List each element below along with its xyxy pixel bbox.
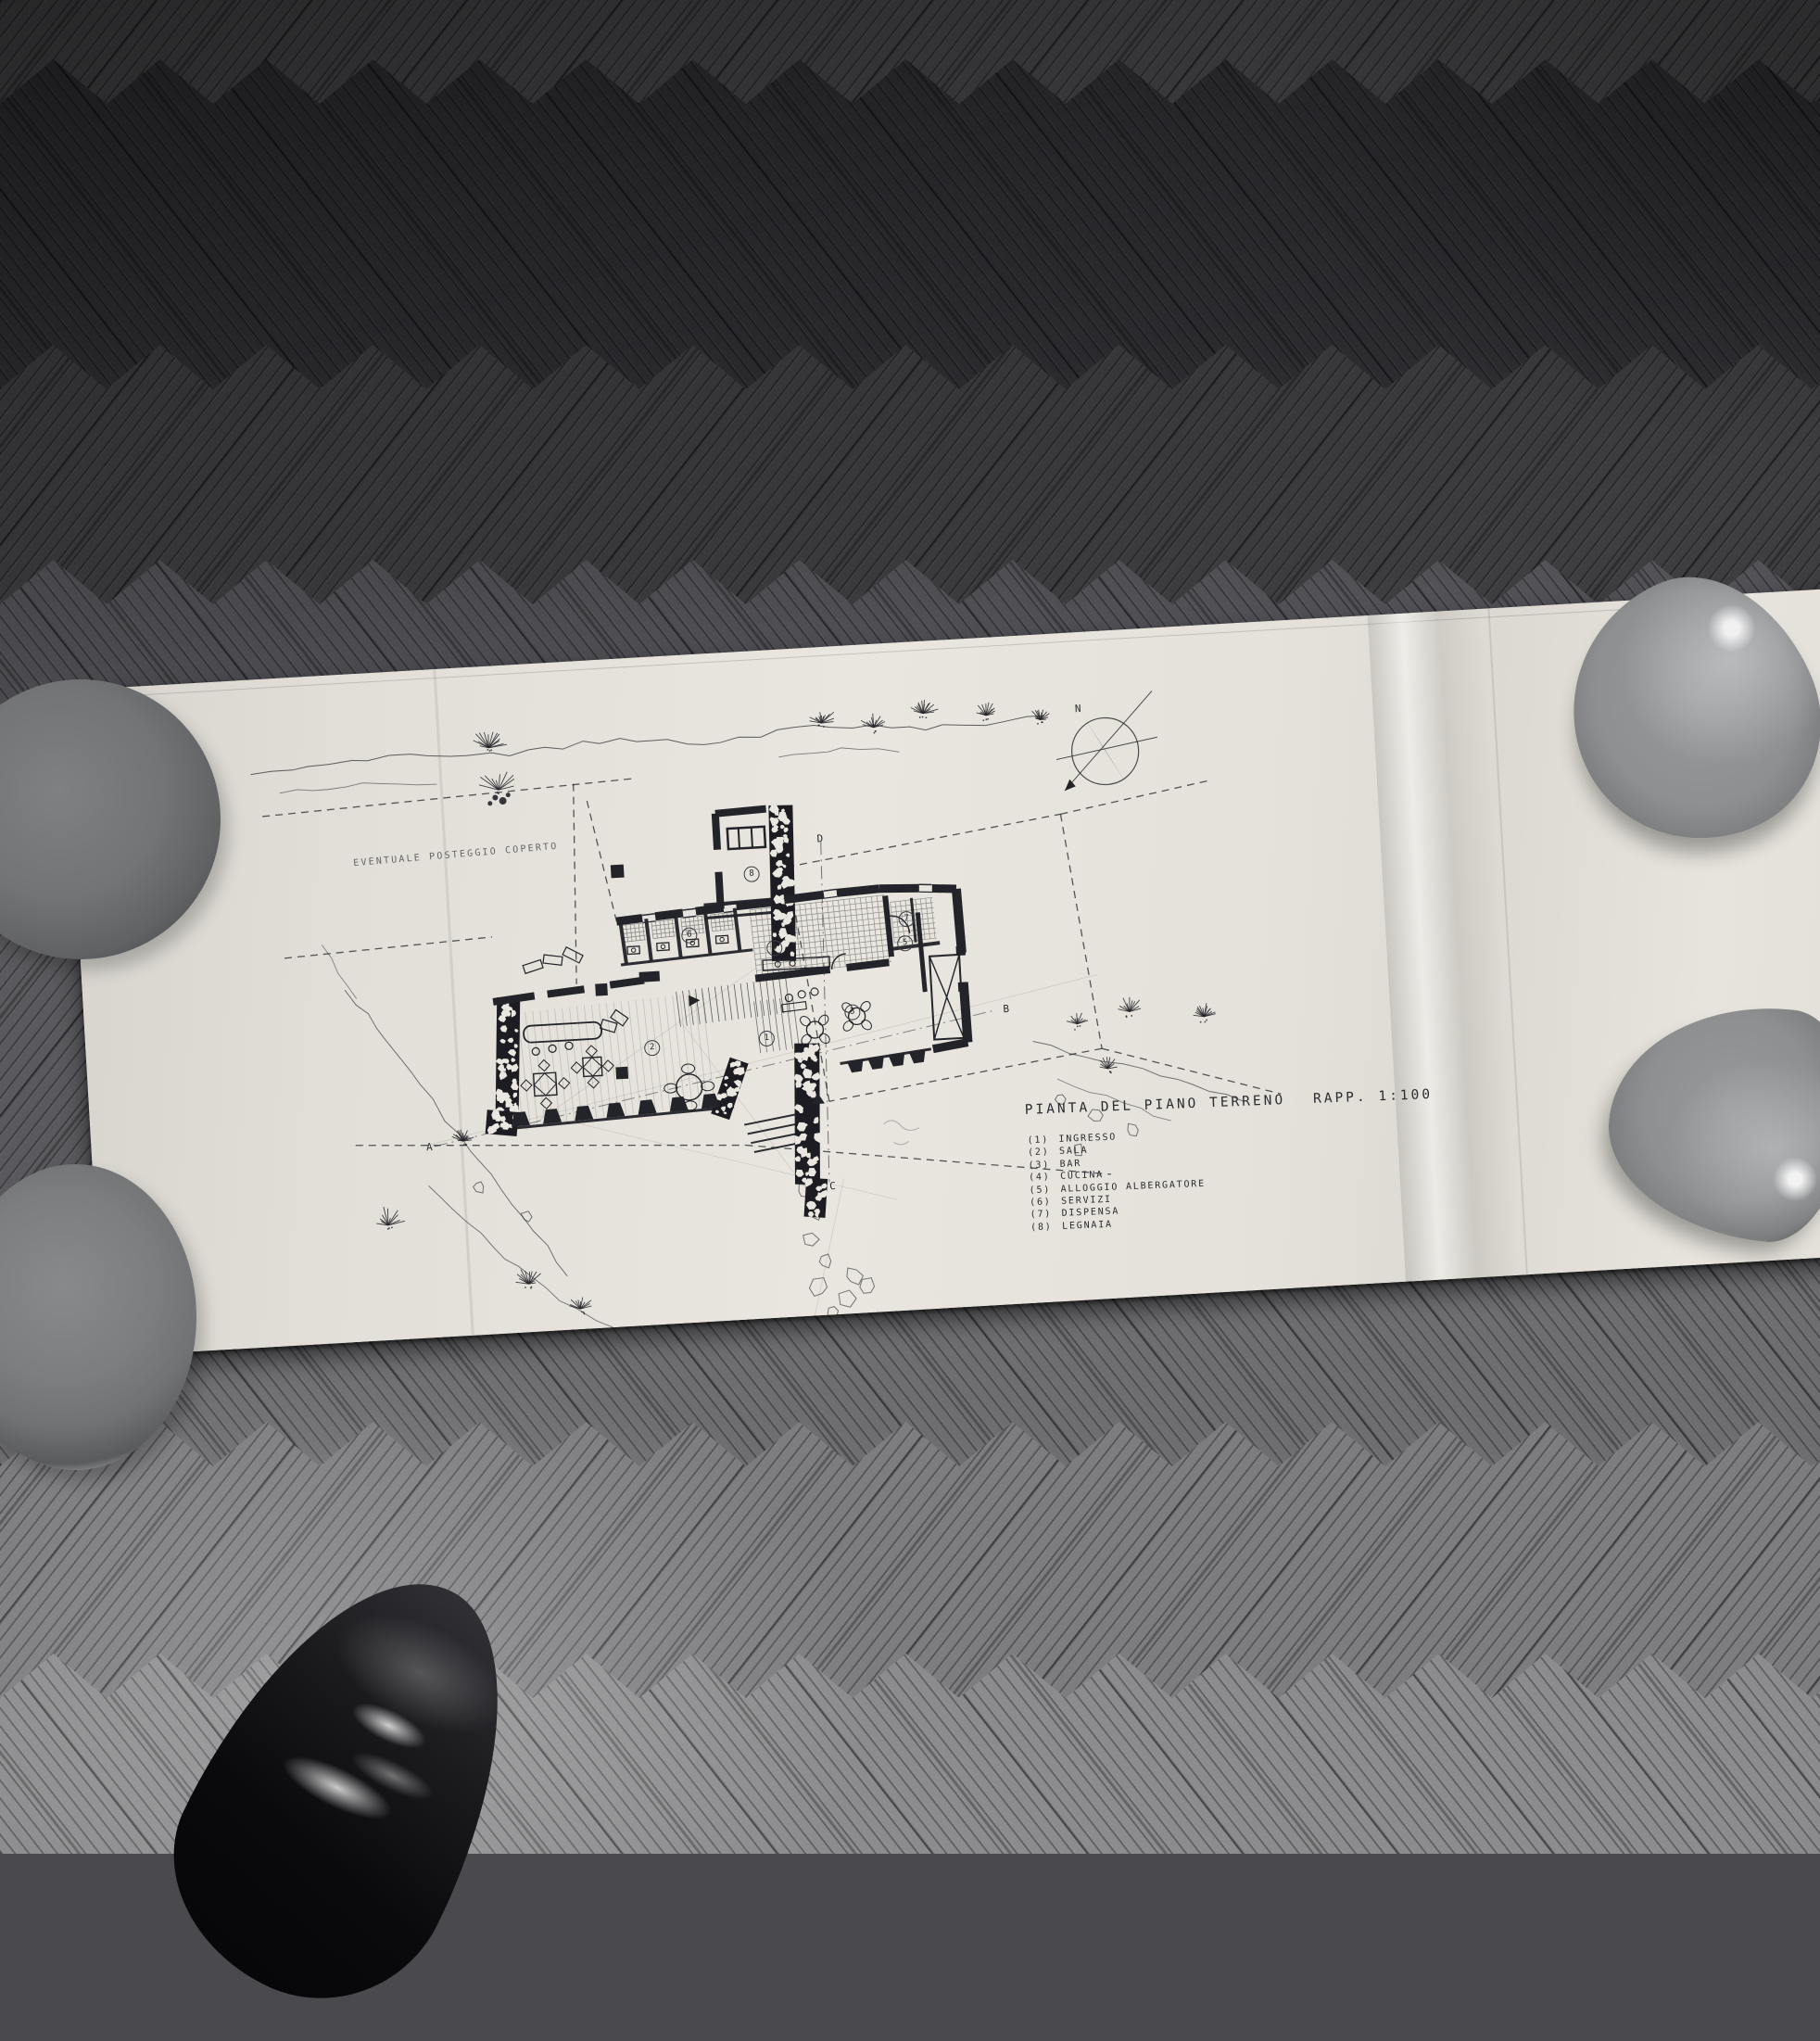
legend-label: LEGNAIA — [1062, 1219, 1113, 1233]
legend-num: (6) — [1030, 1196, 1061, 1210]
legend-num: (5) — [1029, 1183, 1060, 1197]
north-label: N — [1075, 703, 1081, 715]
legend-num: (1) — [1027, 1134, 1058, 1147]
legend-label: BAR — [1059, 1158, 1081, 1171]
section-marker: C — [829, 1180, 836, 1192]
legend-label: SALA — [1059, 1145, 1089, 1159]
legend-num: (8) — [1030, 1221, 1062, 1235]
stone-walls — [467, 803, 831, 1237]
photograph-floorplan-on-parquet: { "drawing": { "title": "PIANTA DEL PIAN… — [0, 0, 1820, 1854]
drawing-sheet: EVENTUALE POSTEGGIO COPERTO N PIANTA DEL… — [65, 586, 1820, 1357]
north-compass-icon — [1053, 691, 1160, 791]
legend-num: (4) — [1029, 1171, 1060, 1185]
terrain-contours — [248, 683, 1257, 1357]
section-marker: D — [816, 832, 823, 844]
floor-plan-drawing — [220, 653, 1404, 1357]
legend-num: (3) — [1028, 1159, 1059, 1173]
legend-num: (2) — [1028, 1146, 1059, 1160]
section-marker: A — [426, 1141, 433, 1153]
section-marker: B — [1003, 1003, 1009, 1015]
parquet-band — [0, 59, 1820, 389]
plan-legend: (1)INGRESSO (2)SALA (3)BAR (4)CUCINA (5)… — [1027, 1128, 1207, 1234]
legend-label: INGRESSO — [1058, 1131, 1117, 1146]
legend-num: (7) — [1030, 1208, 1061, 1222]
construction-lines — [421, 948, 1117, 1344]
